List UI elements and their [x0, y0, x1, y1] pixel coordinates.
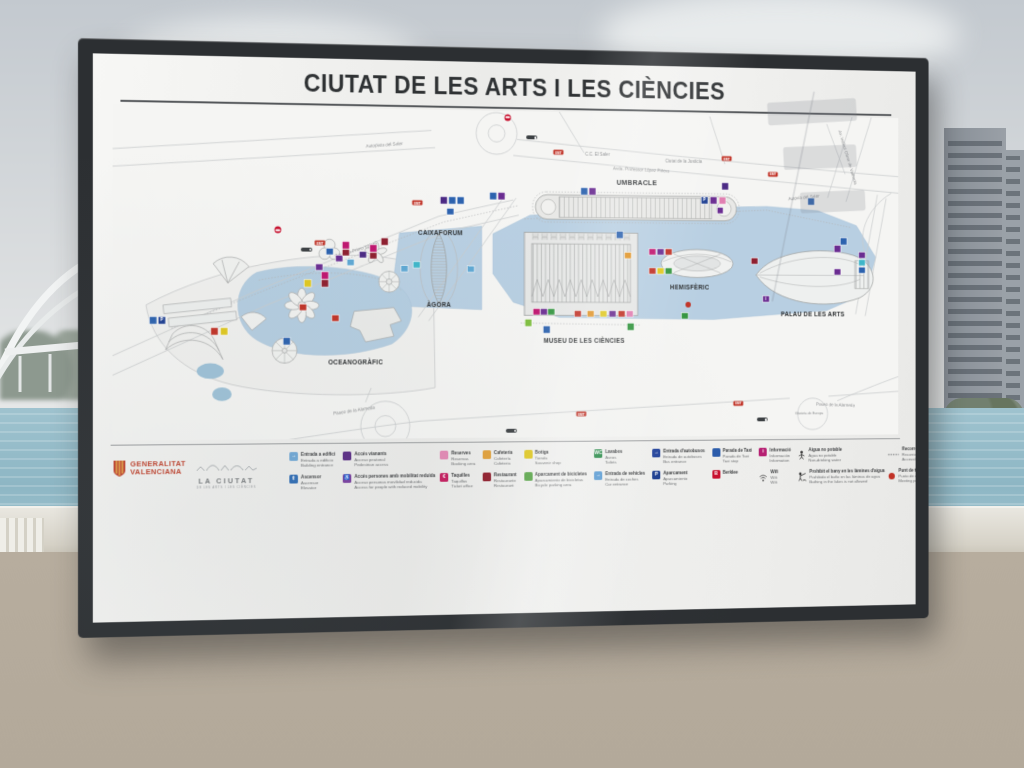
reduced-mobility-access-icon: ♿	[343, 474, 352, 483]
legend-item: →Entrada de vehiclesEntrada de cochesCar…	[594, 471, 645, 489]
map-marker	[859, 260, 865, 266]
legend-item-text: Accés persones amb mobilitat reduïdaAcce…	[354, 473, 435, 489]
legend-line: Parking	[663, 481, 687, 486]
legend-item: €TaquillesTaquillasTicket office	[440, 473, 475, 491]
map-marker: P	[701, 197, 707, 203]
legend-line: Souvenir shop	[535, 460, 561, 465]
la-ciutat-tagline: DE LES ARTS I LES CIÈNCIES	[195, 485, 257, 490]
legend-item: ⇕AscensorAscensorElevator	[289, 474, 335, 492]
building-tower	[1002, 150, 1024, 430]
map-marker	[441, 197, 447, 203]
map-marker	[211, 328, 217, 334]
map-marker-vb	[526, 136, 537, 140]
legend-line: Cafeteria	[494, 460, 513, 465]
legend-item-text: InformacióInformaciónInformation	[770, 448, 791, 463]
wifi-icon	[759, 470, 768, 487]
legend-line: Car entrance	[605, 481, 645, 486]
map-marker	[617, 232, 623, 238]
elevator-icon: ⇕	[289, 475, 298, 484]
map-marker	[808, 198, 814, 204]
map-marker	[834, 246, 840, 252]
legend-item: RestaurantRestauranteRestaurant	[483, 472, 517, 490]
legend-line: Wifi	[771, 480, 779, 485]
legend-item: Punt de trobadaPunto de encuentroMeeting…	[888, 468, 915, 486]
map-marker	[447, 208, 453, 214]
map-marker	[541, 309, 547, 315]
taxi-stop-icon	[712, 448, 720, 457]
map-marker-metro	[504, 114, 510, 121]
map-marker	[322, 272, 328, 278]
map-marker	[665, 249, 671, 255]
legend-item-text: CafeteriaCafeteríaCafeteria	[494, 450, 513, 466]
map-marker	[589, 188, 595, 194]
map-marker	[401, 265, 407, 271]
legend-item: CafeteriaCafeteríaCafeteria	[483, 450, 517, 468]
sign-board: CIUTAT DE LES ARTS I LES CIÈNCIES	[78, 38, 929, 638]
map-marker	[283, 338, 289, 344]
legend-line: Meeting point	[899, 478, 916, 483]
bicycle-parking-icon	[524, 472, 532, 481]
map-marker	[221, 328, 227, 334]
photo-scene: CIUTAT DE LES ARTS I LES CIÈNCIES	[0, 0, 1024, 768]
ticket-office-icon: €	[440, 473, 448, 482]
map-marker	[859, 252, 865, 258]
legend-item: BotigaTiendaSouvenir shop	[524, 449, 587, 467]
legend-item-text: TaquillesTaquillasTicket office	[451, 473, 473, 489]
legend-line: Toilets	[605, 459, 622, 464]
footer-logos: GENERALITAT VALENCIANA LA CIUTAT DE LES …	[113, 450, 280, 494]
car-entrance-icon: →	[594, 471, 602, 480]
legend-item-text: Recorreguts accessiblesRecorridos accesi…	[902, 446, 916, 461]
legend-item-text: Berklee	[723, 470, 738, 475]
sign-shadow	[140, 628, 900, 698]
map-marker	[834, 269, 840, 275]
map-marker-emt: EMT	[553, 150, 563, 155]
map-marker	[657, 249, 663, 255]
map-panel: CIUTAT DE LES ARTS I LES CIÈNCIES	[93, 53, 916, 622]
building-windows	[948, 134, 1002, 422]
legend-line: Information	[770, 458, 791, 463]
legend-line: Building entrance	[301, 462, 336, 467]
legend-line: Taxi stop	[723, 458, 752, 463]
legend-item-text: Prohibit el bany en les làmines d'aiguaP…	[809, 468, 884, 484]
gva-shield-icon	[113, 460, 127, 478]
map-marker	[498, 193, 504, 199]
map-marker-emt: EMT	[315, 240, 325, 245]
map-marker	[304, 280, 310, 286]
legend-line: Accessible routes	[902, 456, 916, 461]
map-marker-emt: EMT	[576, 412, 586, 417]
map-marker	[627, 324, 633, 330]
map-marker	[657, 268, 663, 274]
map-marker	[722, 183, 728, 189]
map-marker	[525, 320, 531, 326]
skyline-icon	[195, 462, 257, 472]
legend-item-text: AparcamentAparcamientoParking	[663, 470, 687, 485]
no-drinking-water-icon	[798, 447, 806, 464]
map-marker	[468, 266, 474, 272]
legend-items: →Entrada a edificiEntrada a edificioBuil…	[289, 444, 915, 492]
map-marker-emt: EMT	[722, 156, 732, 161]
map-marker	[575, 311, 581, 317]
shop-icon	[524, 450, 532, 459]
map-marker	[533, 309, 539, 315]
legend-item: →Entrada d'autobusosEntrada de autobuses…	[652, 448, 705, 466]
legend-item-text: RestaurantRestauranteRestaurant	[494, 472, 517, 488]
legend-item-text: Punt de trobadaPunto de encuentroMeeting…	[899, 468, 916, 483]
map-marker	[449, 197, 455, 203]
legend-line: Pedestrian access	[354, 462, 388, 467]
legend-line: Non-drinking water	[809, 457, 842, 462]
map-marker	[665, 268, 671, 274]
legend-line: Berklee	[723, 470, 738, 475]
map-marker	[360, 252, 366, 258]
legend-line: Booking area	[451, 461, 475, 466]
legend-item: ReservesReservasBooking area	[440, 450, 475, 468]
legend-item-text: ReservesReservasBooking area	[451, 450, 475, 466]
legend-item-text: Parada de TaxiParada de TaxiTaxi stop	[723, 448, 752, 463]
map-marker	[316, 264, 322, 270]
map-marker	[343, 250, 349, 256]
no-bathing-icon	[798, 469, 807, 486]
building-tower	[944, 128, 1006, 428]
legend-item: Recorreguts accessiblesRecorridos accesi…	[888, 446, 915, 463]
map-marker-emt: EMT	[768, 172, 778, 177]
legend-line: Ticket office	[451, 483, 473, 488]
map-marker	[370, 245, 376, 251]
la-ciutat-logo: LA CIUTAT DE LES ARTS I LES CIÈNCIES	[195, 458, 257, 489]
map-marker	[543, 326, 549, 332]
map-marker	[336, 255, 342, 261]
legend-item: WifiWifiWifi	[759, 469, 791, 486]
map-marker	[649, 249, 655, 255]
map-markers: EMTPEMTEMTEMTEMTPiEMTEMT	[113, 104, 899, 441]
information-icon: i	[759, 448, 767, 457]
map-marker	[300, 304, 306, 310]
accessible-routes-icon	[888, 447, 899, 464]
map-marker	[581, 188, 587, 194]
generalitat-valenciana-logo: GENERALITAT VALENCIANA	[113, 459, 186, 478]
legend-item: →Entrada a edificiEntrada a edificioBuil…	[289, 452, 335, 470]
cafeteria-icon	[483, 450, 491, 459]
map-marker	[381, 238, 387, 244]
map-marker	[609, 311, 615, 317]
legend-item-text: WifiWifiWifi	[771, 469, 779, 484]
restaurant-icon	[483, 473, 491, 482]
legend-item-text: Entrada de vehiclesEntrada de cochesCar …	[605, 471, 645, 487]
legend-line: Bathing in the lakes is not allowed	[809, 478, 884, 484]
legend: GENERALITAT VALENCIANA LA CIUTAT DE LES …	[111, 438, 900, 494]
legend-item-text: Entrada a edificiEntrada a edificioBuild…	[301, 452, 336, 468]
legend-item-text: AscensorAscensorElevator	[301, 474, 321, 490]
map-marker	[649, 268, 655, 274]
legend-item-text: LavabosAseosToilets	[605, 449, 622, 464]
map-marker-vb	[506, 429, 517, 433]
legend-item: Prohibit el bany en les làmines d'aiguaP…	[798, 468, 881, 486]
map-marker	[150, 317, 156, 323]
legend-line: Elevator	[301, 485, 321, 490]
legend-line: Restaurant	[494, 483, 517, 488]
map-marker	[457, 197, 463, 203]
legend-item-text: Accés vianantsAcceso peatonalPedestrian …	[354, 451, 388, 467]
map-marker	[347, 259, 353, 265]
map-marker	[322, 280, 328, 286]
legend-line: Bicycle parking area	[535, 482, 587, 488]
gva-text-2: VALENCIANA	[130, 468, 185, 477]
map-marker	[370, 253, 376, 259]
building-windows	[1006, 156, 1020, 424]
legend-item-text: BotigaTiendaSouvenir shop	[535, 450, 561, 466]
map-marker	[841, 238, 847, 244]
reservations-icon	[440, 451, 448, 460]
pedestrian-access-icon	[343, 452, 352, 461]
map-marker	[627, 311, 633, 317]
map-marker	[859, 267, 865, 273]
berklee-logo-icon: B	[712, 470, 720, 479]
map-marker	[751, 258, 757, 264]
bus-entrance-icon: →	[652, 449, 660, 458]
map-marker	[548, 309, 554, 315]
legend-line: Bus entrance	[663, 459, 705, 464]
map-marker-metro	[274, 227, 281, 234]
map-marker-dotred	[685, 302, 690, 308]
legend-item: ♿Accés persones amb mobilitat reduïdaAcc…	[343, 473, 433, 492]
map-marker	[413, 261, 419, 267]
map-marker	[710, 197, 716, 203]
map-marker	[600, 311, 606, 317]
building-entrance-icon: →	[289, 452, 298, 461]
map-area: UMBRACLE CAIXAFORUM ÀGORA HEMISFÈRIC MUS…	[113, 104, 899, 441]
map-marker	[587, 311, 593, 317]
legend-item: Aparcament de bicicletesAparcamiento de …	[524, 471, 587, 489]
map-marker-emt: EMT	[412, 200, 422, 205]
legend-item: Parada de TaxiParada de TaxiTaxi stop	[712, 448, 752, 465]
meeting-point-icon	[888, 468, 896, 485]
map-marker	[343, 242, 349, 248]
map-marker	[718, 208, 724, 214]
map-marker: P	[158, 317, 164, 323]
legend-line: Access for people with reduced mobility	[354, 484, 435, 490]
map-marker	[618, 311, 624, 317]
map-marker	[625, 252, 631, 258]
legend-item: BBerklee	[712, 470, 752, 488]
toilets-icon: WC	[594, 449, 602, 458]
legend-item: Aigua no potableAgua no potableNon-drink…	[798, 447, 881, 465]
legend-item-text: Entrada d'autobusosEntrada de autobusesB…	[663, 448, 705, 464]
legend-item: iInformacióInformaciónInformation	[759, 448, 791, 465]
map-marker	[490, 193, 496, 199]
map-marker: i	[763, 296, 769, 302]
map-marker	[332, 315, 338, 321]
map-marker-vb	[757, 418, 768, 422]
legend-item-text: Aigua no potableAgua no potableNon-drink…	[809, 447, 842, 462]
parking-icon: P	[652, 471, 660, 480]
legend-item: PAparcamentAparcamientoParking	[652, 470, 705, 488]
map-marker	[719, 197, 725, 203]
legend-item-text: Aparcament de bicicletesAparcamiento de …	[535, 471, 587, 487]
legend-item: WCLavabosAseosToilets	[594, 449, 645, 467]
map-marker	[682, 313, 688, 319]
legend-item: Accés vianantsAcceso peatonalPedestrian …	[343, 451, 433, 469]
map-marker-vb	[301, 248, 312, 252]
map-marker	[326, 248, 332, 254]
map-marker-emt: EMT	[733, 401, 743, 406]
